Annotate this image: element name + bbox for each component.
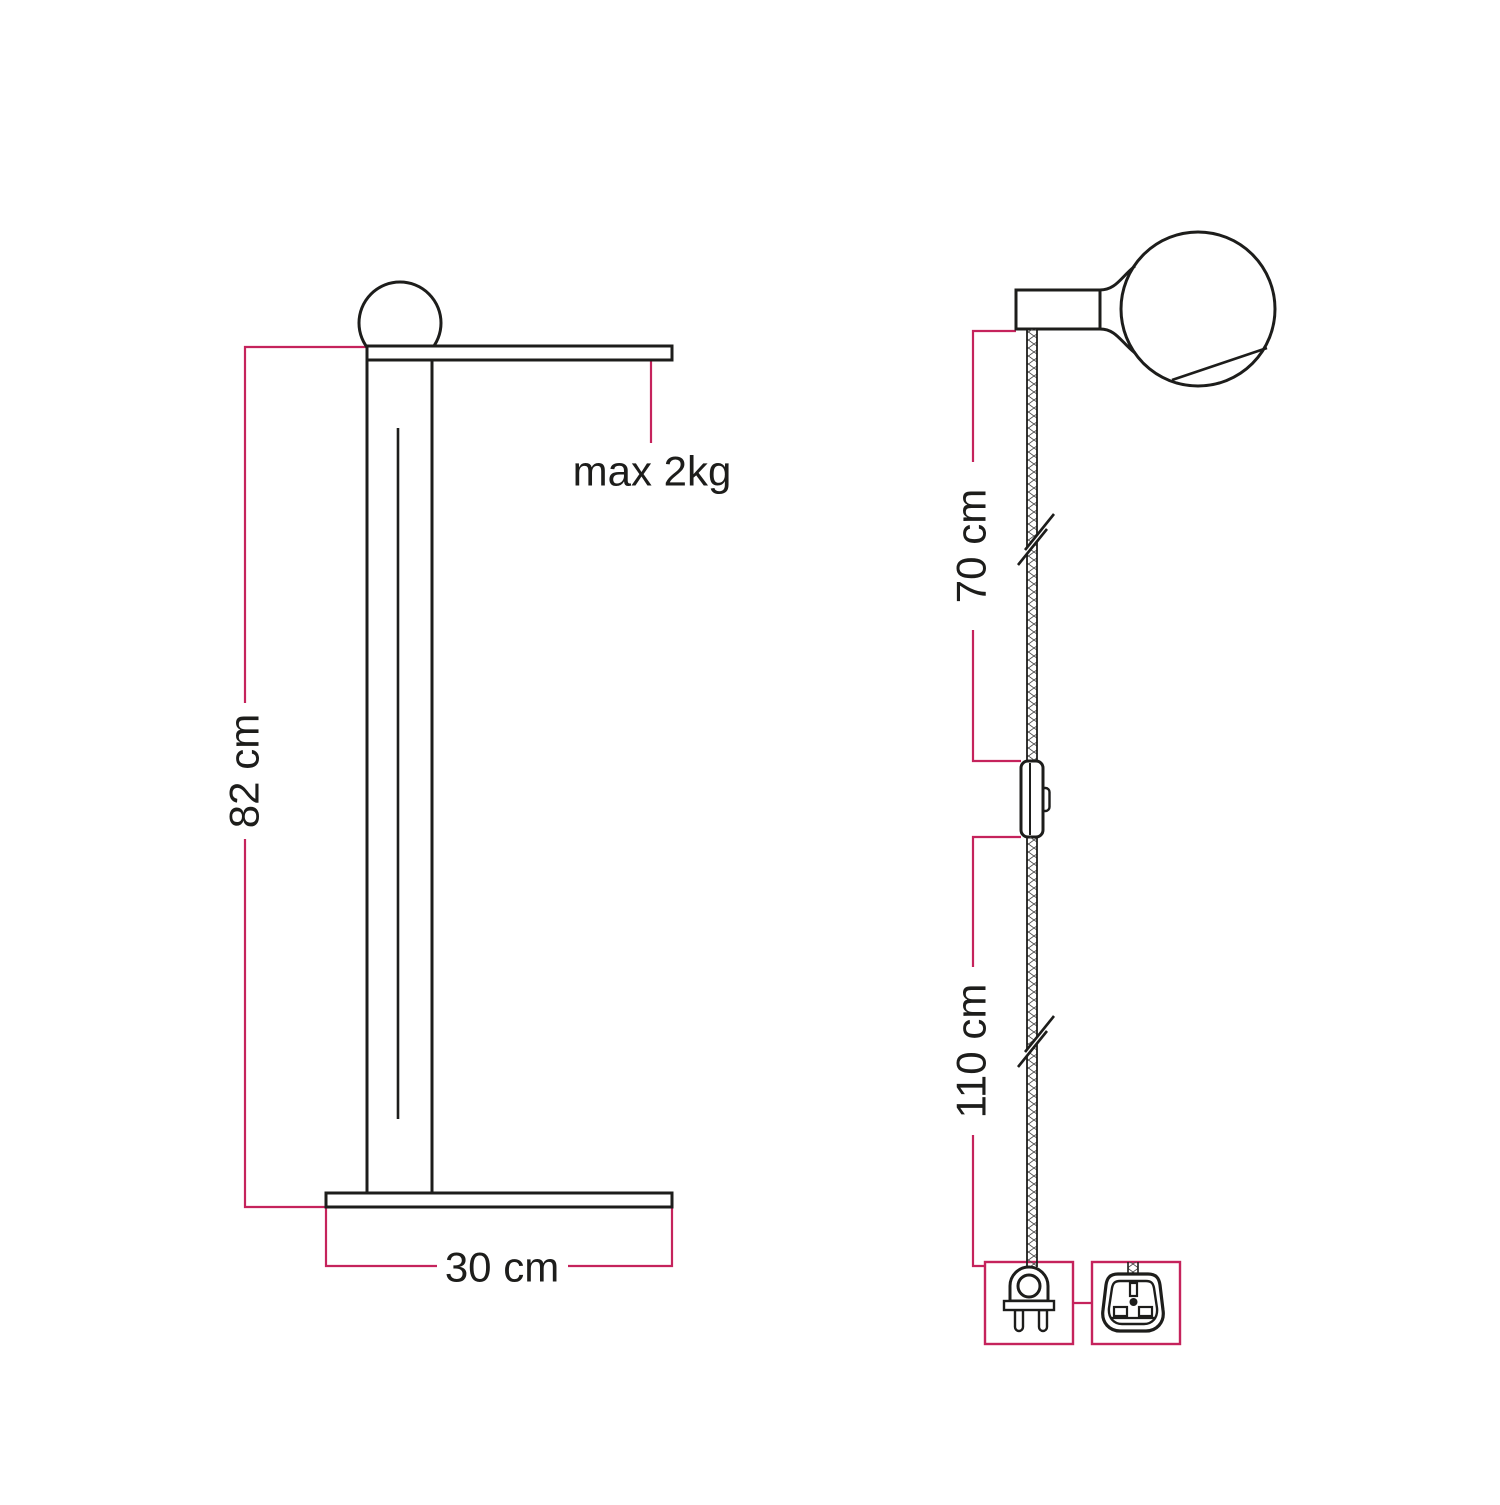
eu-plug-prong-right (1039, 1310, 1047, 1331)
uk-plug-center-dot (1130, 1298, 1138, 1306)
height-dimension-line-bottom (245, 839, 326, 1207)
diagram-page: 82 cm max 2kg 30 cm (0, 0, 1500, 1500)
side-view-dimension-lines (973, 331, 1180, 1344)
switch-icon (1021, 761, 1050, 837)
base-width-dimension-right (568, 1207, 672, 1266)
height-dimension-line-top (245, 347, 366, 703)
bulb-side-icon (1121, 232, 1275, 386)
base-width-label: 30 cm (445, 1244, 559, 1291)
lamp-front-drawing (326, 282, 672, 1207)
max-load-label: max 2kg (573, 448, 732, 495)
base-width-dimension-left (326, 1207, 437, 1266)
lamp-pole (367, 347, 432, 1193)
lower-cable-length-label: 110 cm (948, 984, 995, 1119)
lamp-shelf (367, 346, 672, 360)
eu-plug-icon (1004, 1267, 1054, 1331)
lamp-socket (1016, 290, 1100, 329)
cable-kit-drawing (1004, 232, 1275, 1331)
eu-plug-prong-left (1015, 1310, 1023, 1331)
lower-cable-dimension-bottom (973, 1135, 985, 1266)
upper-cable-length-label: 70 cm (948, 489, 995, 603)
eu-plug-base-bar (1004, 1301, 1054, 1310)
upper-cable-dimension-top (973, 331, 1016, 462)
uk-plug-icon (1103, 1262, 1164, 1331)
upper-cable-dimension-bottom (973, 630, 1021, 761)
height-label: 82 cm (221, 714, 268, 828)
lamp-base (326, 1193, 672, 1207)
lower-cable-dimension-top (973, 837, 1021, 967)
lamp-dimension-diagram: 82 cm max 2kg 30 cm (0, 0, 1500, 1500)
